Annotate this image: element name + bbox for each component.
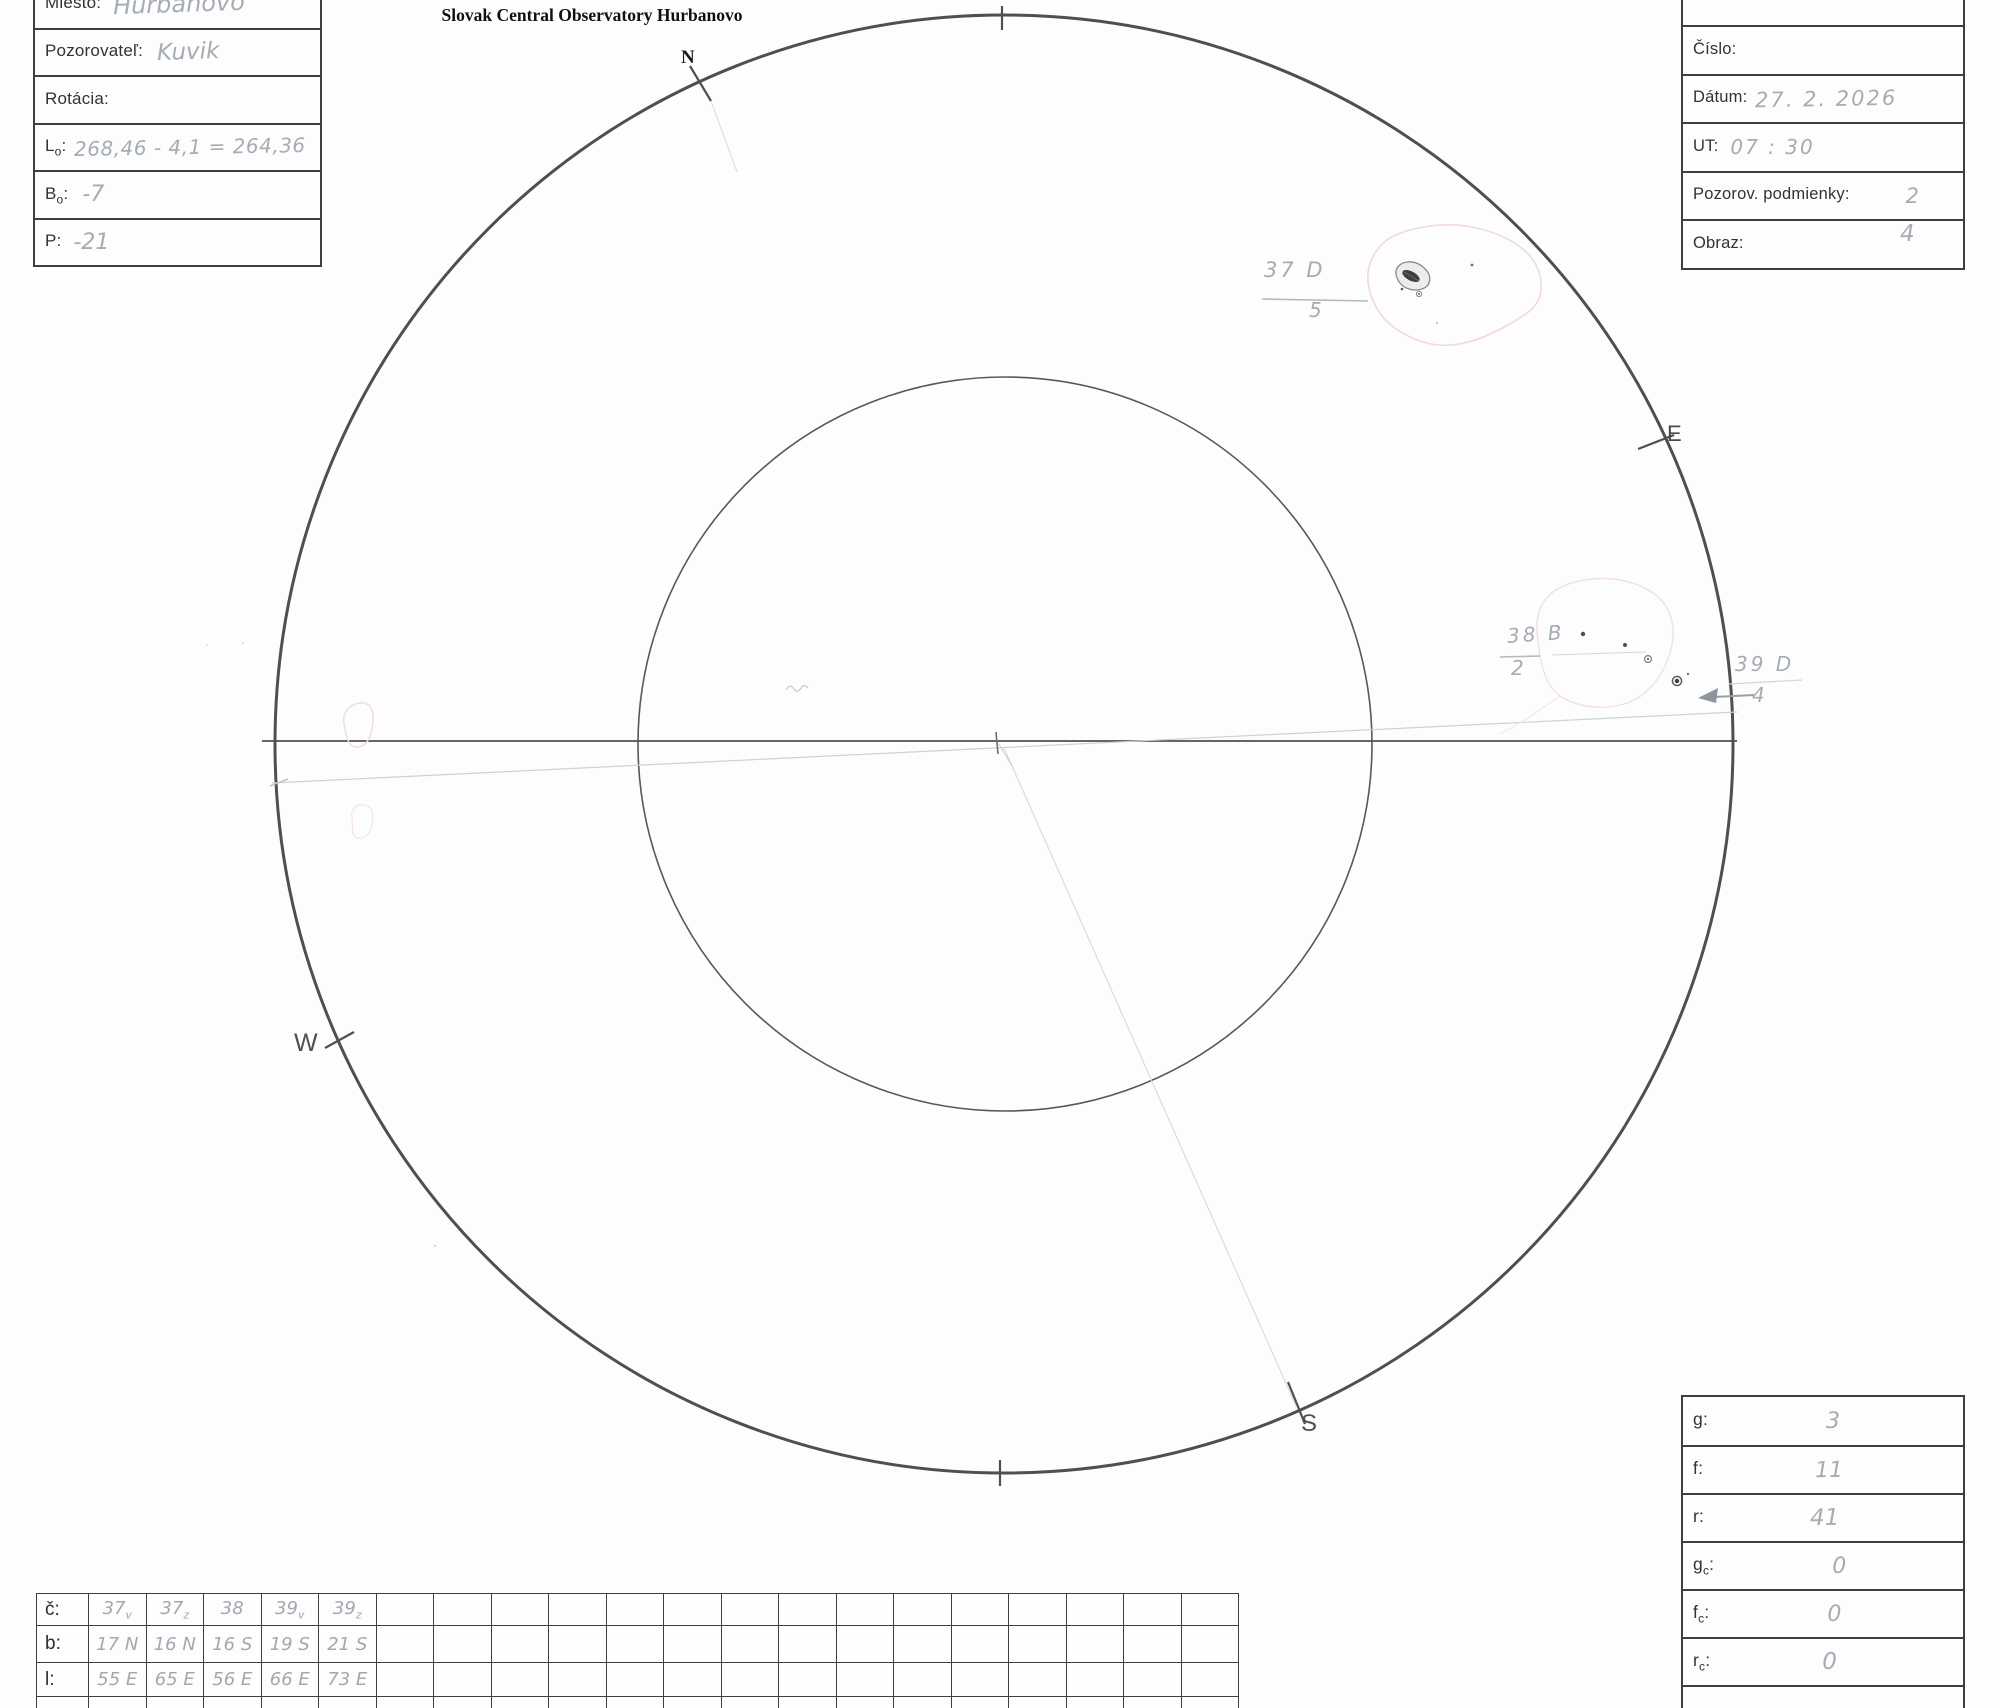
empty-cell bbox=[1124, 1626, 1182, 1663]
field-cislo: Číslo: bbox=[1683, 25, 1963, 74]
empty-cell bbox=[204, 1697, 262, 1708]
fc-value: 0 bbox=[1827, 1602, 1841, 1627]
fc-label: fc: bbox=[1693, 1602, 1709, 1626]
f-label: f: bbox=[1693, 1458, 1703, 1482]
pozorovatel-value: Kuvik bbox=[157, 38, 220, 66]
empty-cell bbox=[376, 1697, 434, 1708]
center-tick bbox=[996, 732, 998, 754]
spot-dot bbox=[1401, 288, 1404, 291]
faculae-tail bbox=[1500, 696, 1560, 734]
pencil-north-axis-line bbox=[711, 101, 737, 172]
empty-cell bbox=[894, 1594, 952, 1626]
empty-cell bbox=[836, 1594, 894, 1626]
rc-label: rc: bbox=[1693, 1650, 1710, 1674]
rc-value: 0 bbox=[1822, 1649, 1837, 1675]
empty-cell bbox=[951, 1626, 1009, 1663]
field-b0: Bo: -7 bbox=[35, 170, 320, 218]
empty-cell bbox=[721, 1663, 779, 1697]
row-group-number: č: 37v 37z 38 39v 39z bbox=[37, 1594, 1239, 1626]
empty-row bbox=[1683, 0, 1963, 25]
group-number-cell: 37z bbox=[146, 1594, 204, 1626]
empty-cell bbox=[376, 1626, 434, 1663]
empty-cell bbox=[1181, 1697, 1239, 1708]
empty-cell bbox=[1181, 1663, 1239, 1697]
datum-value: 27. 2. 2026 bbox=[1755, 86, 1898, 112]
annotation-group-37-count: 5 bbox=[1309, 298, 1322, 322]
podmienky-value: 2 bbox=[1906, 184, 1919, 208]
empty-cell bbox=[1066, 1626, 1124, 1663]
empty-cell bbox=[606, 1697, 664, 1708]
empty-cell bbox=[37, 1697, 89, 1708]
ut-value: 07 : 30 bbox=[1730, 135, 1814, 159]
arrow-line-39 bbox=[1714, 695, 1754, 697]
longitude-cell: 66 E bbox=[261, 1663, 319, 1697]
group-number-cell: 37v bbox=[89, 1594, 147, 1626]
empty-cell bbox=[549, 1697, 607, 1708]
annotation-group-38-designation: 38 B bbox=[1506, 620, 1565, 648]
spot-dot bbox=[1418, 293, 1420, 295]
b0-value: -7 bbox=[82, 182, 104, 207]
gc-value: 0 bbox=[1832, 1554, 1846, 1579]
counts-box: g: 3 f: 11 r: 41 gc: 0 fc: 0 rc: 0 bbox=[1681, 1395, 1965, 1708]
spot-dot bbox=[1471, 264, 1474, 267]
empty-cell bbox=[89, 1697, 147, 1708]
p-label: P: bbox=[45, 231, 61, 253]
spot-dot bbox=[1581, 632, 1585, 636]
sunspot-group-37 bbox=[1396, 262, 1474, 324]
field-pozorovatel: Pozorovateľ: Kuvik bbox=[35, 28, 320, 76]
empty-cell bbox=[549, 1594, 607, 1626]
f-value: 11 bbox=[1815, 1457, 1843, 1482]
faculae-outlines bbox=[344, 225, 1673, 839]
empty-cell bbox=[779, 1697, 837, 1708]
row-l-label: l: bbox=[37, 1663, 89, 1697]
empty-cell bbox=[261, 1697, 319, 1708]
empty-cell bbox=[549, 1663, 607, 1697]
empty-cell bbox=[1066, 1663, 1124, 1697]
p-value: -21 bbox=[73, 230, 109, 255]
empty-cell bbox=[491, 1626, 549, 1663]
empty-cell bbox=[894, 1626, 952, 1663]
empty-cell bbox=[1009, 1663, 1067, 1697]
empty-cell bbox=[1124, 1697, 1182, 1708]
row-latitude: b: 17 N 16 N 16 S 19 S 21 S bbox=[37, 1626, 1239, 1663]
empty-cell bbox=[376, 1663, 434, 1697]
pozorovatel-label: Pozorovateľ: bbox=[45, 41, 143, 63]
row-c-label: č: bbox=[37, 1594, 89, 1626]
empty-cell bbox=[1066, 1594, 1124, 1626]
b0-label: Bo: bbox=[45, 184, 68, 206]
field-fc: fc: 0 bbox=[1683, 1589, 1963, 1637]
empty-cell bbox=[836, 1697, 894, 1708]
spot-dot bbox=[1687, 673, 1689, 675]
annotation-group-39-designation: 39 D bbox=[1735, 652, 1794, 676]
obraz-value: 4 bbox=[1900, 221, 1916, 247]
empty-cell bbox=[951, 1594, 1009, 1626]
spot-dot bbox=[1623, 643, 1627, 647]
empty-cell bbox=[434, 1626, 492, 1663]
empty-cell bbox=[664, 1594, 722, 1626]
field-l0: Lo: 268,46 - 4,1 = 264,36 bbox=[35, 123, 320, 171]
longitude-cell: 55 E bbox=[89, 1663, 147, 1697]
obraz-label: Obraz: bbox=[1693, 234, 1744, 255]
g-value: 3 bbox=[1826, 1409, 1840, 1434]
field-podmienky: Pozorov. podmienky: 2 bbox=[1683, 171, 1963, 220]
empty-cell bbox=[1181, 1626, 1239, 1663]
empty-cell bbox=[951, 1697, 1009, 1708]
pencil-pointer-line-38 bbox=[1552, 652, 1646, 655]
latitude-cell: 19 S bbox=[261, 1626, 319, 1663]
arrow-head-39 bbox=[1698, 688, 1718, 703]
group-number-cell: 38 bbox=[204, 1594, 262, 1626]
row-longitude: l: 55 E 65 E 56 E 66 E 73 E bbox=[37, 1663, 1239, 1697]
page-title: Slovak Central Observatory Hurbanovo bbox=[432, 5, 752, 26]
compass-west-label: W bbox=[294, 1029, 318, 1058]
empty-cell bbox=[491, 1663, 549, 1697]
empty-cell bbox=[606, 1626, 664, 1663]
gc-label: gc: bbox=[1693, 1554, 1714, 1578]
miesto-value: Hurbanovo bbox=[113, 0, 246, 20]
speck bbox=[206, 644, 208, 646]
field-miesto: Miesto: Hurbanovo bbox=[35, 0, 320, 28]
podmienky-label: Pozorov. podmienky: bbox=[1693, 185, 1850, 206]
empty-cell bbox=[1009, 1697, 1067, 1708]
r-label: r: bbox=[1693, 1506, 1704, 1530]
field-gc: gc: 0 bbox=[1683, 1541, 1963, 1589]
field-ut: UT: 07 : 30 bbox=[1683, 122, 1963, 171]
latitude-cell: 16 N bbox=[146, 1626, 204, 1663]
compass-north-label: N bbox=[681, 47, 695, 69]
empty-row bbox=[1683, 1685, 1963, 1708]
annotation-group-38-count: 2 bbox=[1511, 656, 1524, 680]
empty-cell bbox=[549, 1626, 607, 1663]
g-label: g: bbox=[1693, 1409, 1708, 1433]
empty-cell bbox=[664, 1697, 722, 1708]
datum-label: Dátum: bbox=[1693, 88, 1747, 109]
empty-cell bbox=[376, 1594, 434, 1626]
pencil-south-axis-line bbox=[1004, 748, 1296, 1406]
empty-cell bbox=[434, 1594, 492, 1626]
empty-cell bbox=[434, 1697, 492, 1708]
empty-cell bbox=[779, 1594, 837, 1626]
empty-cell bbox=[1181, 1594, 1239, 1626]
field-g: g: 3 bbox=[1683, 1397, 1963, 1445]
empty-cell bbox=[491, 1697, 549, 1708]
session-info-box: Číslo: Dátum: 27. 2. 2026 UT: 07 : 30 Po… bbox=[1681, 0, 1965, 270]
solar-observation-sheet: Slovak Central Observatory Hurbanovo N E… bbox=[0, 0, 2000, 1708]
empty-cell bbox=[664, 1663, 722, 1697]
empty-cell bbox=[779, 1663, 837, 1697]
row-b-label: b: bbox=[37, 1626, 89, 1663]
latitude-cell: 16 S bbox=[204, 1626, 262, 1663]
faculae-group-37 bbox=[1368, 225, 1541, 345]
empty-cell bbox=[836, 1626, 894, 1663]
empty-cell bbox=[1009, 1594, 1067, 1626]
compass-south-label: S bbox=[1301, 1410, 1317, 1438]
pencil-construction-lines bbox=[270, 101, 1737, 1406]
field-r: r: 41 bbox=[1683, 1493, 1963, 1541]
empty-cell bbox=[721, 1626, 779, 1663]
empty-cell bbox=[721, 1697, 779, 1708]
latitude-cell: 17 N bbox=[89, 1626, 147, 1663]
field-obraz: Obraz: 4 bbox=[1683, 219, 1963, 268]
longitude-cell: 73 E bbox=[319, 1663, 377, 1697]
group-number-cell: 39z bbox=[319, 1594, 377, 1626]
inner-circle bbox=[638, 377, 1372, 1111]
field-rc: rc: 0 bbox=[1683, 1637, 1963, 1685]
orientation-ticks bbox=[325, 6, 1674, 1486]
empty-cell bbox=[606, 1594, 664, 1626]
spot-dot bbox=[1647, 658, 1649, 660]
annotation-group-37-designation: 37 D bbox=[1264, 258, 1326, 282]
ut-label: UT: bbox=[1693, 137, 1718, 158]
spot-position-table: č: 37v 37z 38 39v 39z b: 17 N 16 N 16 S … bbox=[36, 1593, 1239, 1708]
empty-cell bbox=[1124, 1594, 1182, 1626]
fraction-bar-39 bbox=[1728, 680, 1802, 684]
longitude-cell: 56 E bbox=[204, 1663, 262, 1697]
longitude-cell: 65 E bbox=[146, 1663, 204, 1697]
empty-cell bbox=[1009, 1626, 1067, 1663]
rotacia-label: Rotácia: bbox=[45, 89, 109, 111]
spot-dot bbox=[1675, 679, 1679, 683]
empty-cell bbox=[1066, 1697, 1124, 1708]
empty-cell bbox=[836, 1663, 894, 1697]
empty-cell bbox=[664, 1626, 722, 1663]
field-rotacia: Rotácia: bbox=[35, 75, 320, 123]
latitude-cell: 21 S bbox=[319, 1626, 377, 1663]
pencil-smudge bbox=[786, 686, 808, 692]
l0-value: 268,46 - 4,1 = 264,36 bbox=[74, 133, 306, 161]
field-p: P: -21 bbox=[35, 218, 320, 266]
empty-cell bbox=[1124, 1663, 1182, 1697]
empty-cell bbox=[894, 1663, 952, 1697]
observer-info-box: Miesto: Hurbanovo Pozorovateľ: Kuvik Rot… bbox=[33, 0, 322, 267]
empty-cell bbox=[779, 1626, 837, 1663]
group-number-cell: 39v bbox=[261, 1594, 319, 1626]
spot-speck bbox=[1436, 322, 1438, 324]
row-extra-clipped bbox=[37, 1697, 1239, 1708]
miesto-label: Miesto: bbox=[45, 0, 101, 15]
field-f: f: 11 bbox=[1683, 1445, 1963, 1493]
empty-cell bbox=[146, 1697, 204, 1708]
l0-label: Lo: bbox=[45, 136, 66, 158]
annotation-group-39-count: 4 bbox=[1752, 683, 1765, 707]
faculae-west-mark-2 bbox=[352, 805, 373, 838]
cislo-label: Číslo: bbox=[1693, 40, 1736, 61]
compass-east-label: E bbox=[1667, 421, 1682, 447]
empty-cell bbox=[491, 1594, 549, 1626]
empty-cell bbox=[951, 1663, 1009, 1697]
pencil-equator-line bbox=[272, 712, 1737, 783]
empty-cell bbox=[721, 1594, 779, 1626]
empty-cell bbox=[319, 1697, 377, 1708]
empty-cell bbox=[434, 1663, 492, 1697]
empty-cell bbox=[894, 1697, 952, 1708]
r-value: 41 bbox=[1810, 1505, 1840, 1532]
speck bbox=[434, 1245, 436, 1247]
outer-limb-circle bbox=[275, 15, 1733, 1473]
empty-cell bbox=[606, 1663, 664, 1697]
field-datum: Dátum: 27. 2. 2026 bbox=[1683, 74, 1963, 123]
speck bbox=[242, 642, 244, 644]
